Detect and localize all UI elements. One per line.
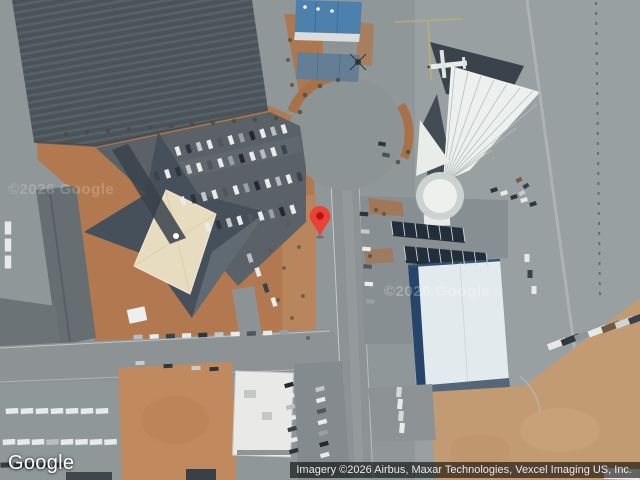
map-pin-icon[interactable] (309, 203, 331, 241)
pin-body (310, 206, 331, 237)
white-building (233, 371, 294, 457)
attribution-bar: Imagery ©2026 Airbus, Maxar Technologies… (290, 462, 640, 478)
attribution-text: Imagery ©2026 Airbus, Maxar Technologies… (296, 462, 632, 478)
hangar-building (408, 260, 510, 396)
google-logo[interactable]: Google (8, 452, 74, 475)
map-canvas[interactable]: ©2026 Google ©2026 Google Google Imagery… (0, 0, 640, 480)
pin-dot (316, 212, 324, 220)
